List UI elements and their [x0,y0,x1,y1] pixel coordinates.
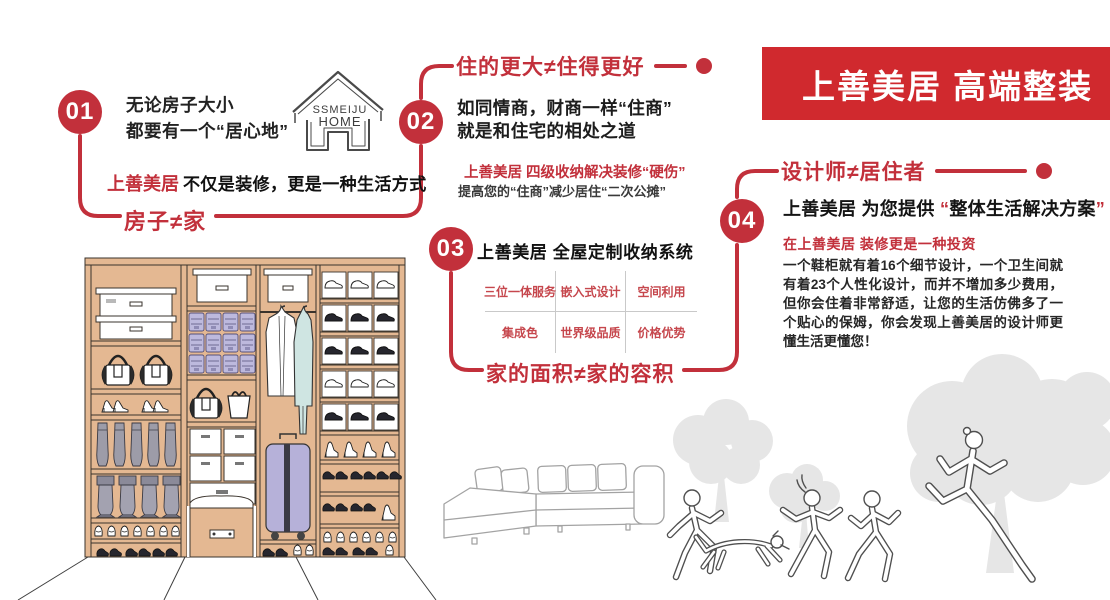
intro-quoted: 整体生活解决方案 [949,199,1095,219]
grid-cell: 空间利用 [626,271,697,312]
step-badge-04: 04 [720,199,764,243]
red-dash [462,151,479,155]
logo-text-line2: HOME [319,114,362,129]
heading-line [935,169,1027,173]
point1-line1: 无论房子大小 [126,92,289,118]
point1-line2: 都要有一个“居心地” [126,118,289,144]
point4-heading: 设计师≠居住者 [781,156,926,186]
point4-intro: 上善美居 为您提供 “整体生活解决方案” [783,195,1105,221]
point1-tagline: 上善美居不仅是装修，更是一种生活方式 [107,170,427,196]
running-child-icon [670,490,721,577]
brand-name: 上善美居 [107,174,179,194]
point3-heading: 上善美居 全屋定制收纳系统 [477,238,694,263]
step-badge-02: 02 [399,100,443,144]
tagline-text: 不仅是装修，更是一种生活方式 [183,175,427,194]
floor-lines [18,557,436,600]
point4-subline-red: 在上善美居 装修更是一种投资 [783,234,976,254]
point4-heading-row: 设计师≠居住者 [781,158,1052,184]
heading-line [654,64,687,68]
running-boy-icon [848,491,898,579]
point2-text: 如同情商，财商一样“住商” 就是和住宅的相处之道 [457,97,672,143]
point2-subline-gray: 提高您的“住商”减少居住“二次公摊” [458,181,666,200]
point2-subline-red: 上善美居 四级收纳解决装修“硬伤” [464,161,686,182]
sofa-illustration [438,452,670,547]
slogan-house-not-home: 房子≠家 [124,204,206,236]
step-badge-03: 03 [429,227,473,271]
red-quote-close: ” [1096,199,1105,219]
point2-line1: 如同情商，财商一样“住商” [457,97,672,120]
outdoor-scene-illustration [640,340,1110,600]
wardrobe-illustration [0,254,460,600]
tree-icon [769,464,840,548]
point1-text: 无论房子大小 都要有一个“居心地” [126,92,289,145]
grid-cell: 嵌入式设计 [556,271,626,312]
grid-cell: 价格优势 [626,312,697,353]
grid-cell: 三位一体服务 [485,271,556,312]
brand-banner: 上善美居 高端整装 [762,47,1110,120]
brand-name: 上善美居 [783,199,856,219]
feature-grid: 三位一体服务 嵌入式设计 空间利用 集成色 世界级品质 价格优势 [485,271,697,353]
heading-dot-icon [696,58,712,74]
grid-cell: 世界级品质 [556,312,626,353]
heading-dot-icon [1036,163,1052,179]
slogan-area-not-volume: 家的面积≠家的容积 [486,358,675,388]
red-quote-open: “ [940,199,949,219]
home-logo-icon: SSMEIJU HOME [288,66,388,156]
red-dash [128,154,149,159]
banner-title: 上善美居 高端整装 [802,60,1093,108]
grid-cell: 集成色 [485,312,556,353]
intro-mid: 为您提供 [856,199,940,219]
point4-paragraph: 一个鞋柜就有着16个细节设计，一个卫生间就有着23个人性化设计，而并不增加多少费… [783,257,1063,351]
point2-heading: 住的更大≠住得更好 [456,51,645,81]
step-badge-01: 01 [58,90,102,134]
ottoman-icon [190,496,253,557]
point2-heading-row: 住的更大≠住得更好 [456,53,712,79]
point2-line2: 就是和住宅的相处之道 [457,120,672,143]
red-dash [783,224,803,229]
poster-canvas: SSMEIJU HOME 01 02 03 04 无论房子大小 都要有一个“居心… [0,0,1110,600]
